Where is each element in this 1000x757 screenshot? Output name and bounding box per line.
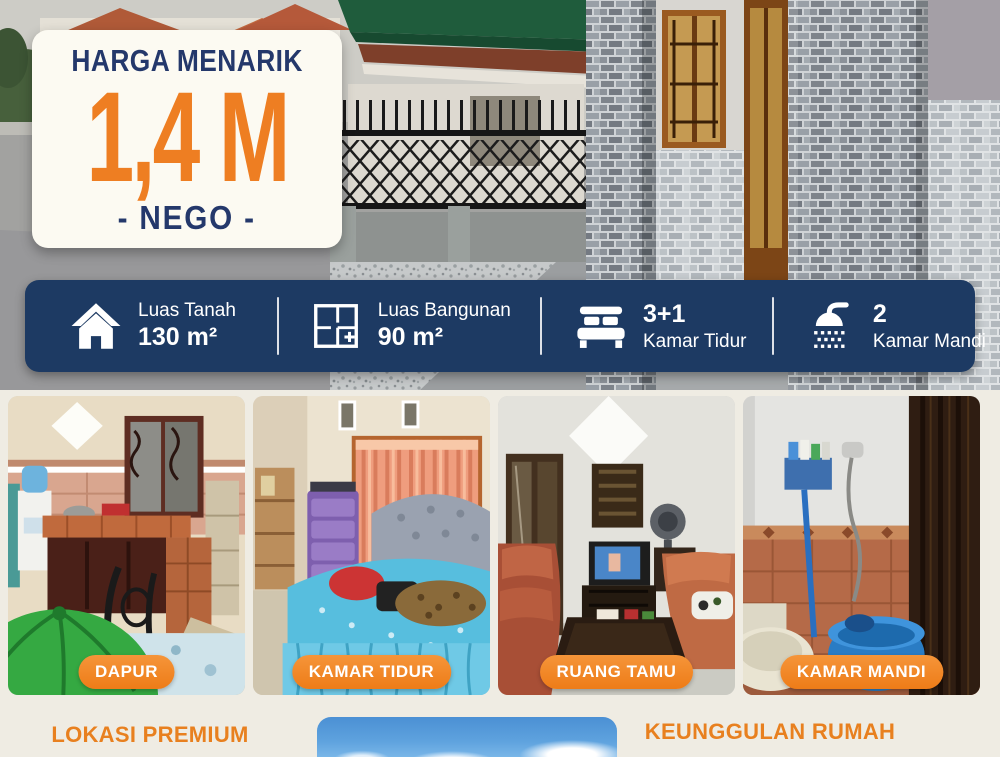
room-label-dapur: DAPUR <box>78 655 175 689</box>
nego-label: - NEGO - <box>118 199 256 237</box>
kitchen-photo: DAPUR <box>8 396 245 695</box>
living-room-photo: RUANG TAMU <box>498 396 735 695</box>
room-label-kamar-tidur: KAMAR TIDUR <box>292 655 451 689</box>
floorplan-icon <box>309 299 363 353</box>
kitchen-illustration <box>8 396 245 695</box>
property-specs-bar: Luas Tanah 130 m² Luas Bangunan 90 m² 3+… <box>25 280 975 372</box>
bed-icon <box>574 299 628 353</box>
spec-value: 90 m² <box>378 322 511 353</box>
spec-building-area: Luas Bangunan 90 m² <box>279 280 540 372</box>
house-icon <box>69 299 123 353</box>
spec-label: Luas Tanah <box>138 299 236 323</box>
spec-value: 2 <box>873 299 986 330</box>
spec-value: 3+1 <box>643 299 746 330</box>
bathroom-illustration <box>743 396 980 695</box>
keunggulan-rumah-heading: KEUNGGULAN RUMAH <box>630 719 910 745</box>
spec-bedrooms: 3+1 Kamar Tidur <box>542 280 772 372</box>
sky-photo <box>317 717 617 757</box>
spec-land-area: Luas Tanah 130 m² <box>25 280 277 372</box>
spec-label: Kamar Mandi <box>873 330 986 354</box>
spec-label: Kamar Tidur <box>643 330 746 354</box>
room-label-ruang-tamu: RUANG TAMU <box>540 655 694 689</box>
shower-icon <box>804 299 858 353</box>
price-card: HARGA MENARIK 1,4 M - NEGO - <box>32 30 342 248</box>
bedroom-photo: KAMAR TIDUR <box>253 396 490 695</box>
bathroom-photo: KAMAR MANDI <box>743 396 980 695</box>
spec-value: 130 m² <box>138 322 236 353</box>
spec-bathrooms: 2 Kamar Mandi <box>774 280 986 372</box>
room-photos-row: DAPUR <box>8 396 980 695</box>
spec-label: Luas Bangunan <box>378 299 511 323</box>
price-value: 1,4 M <box>86 79 287 197</box>
room-label-kamar-mandi: KAMAR MANDI <box>780 655 943 689</box>
bedroom-illustration <box>253 396 490 695</box>
living-room-illustration <box>498 396 735 695</box>
lokasi-premium-heading: LOKASI PREMIUM <box>0 722 300 748</box>
